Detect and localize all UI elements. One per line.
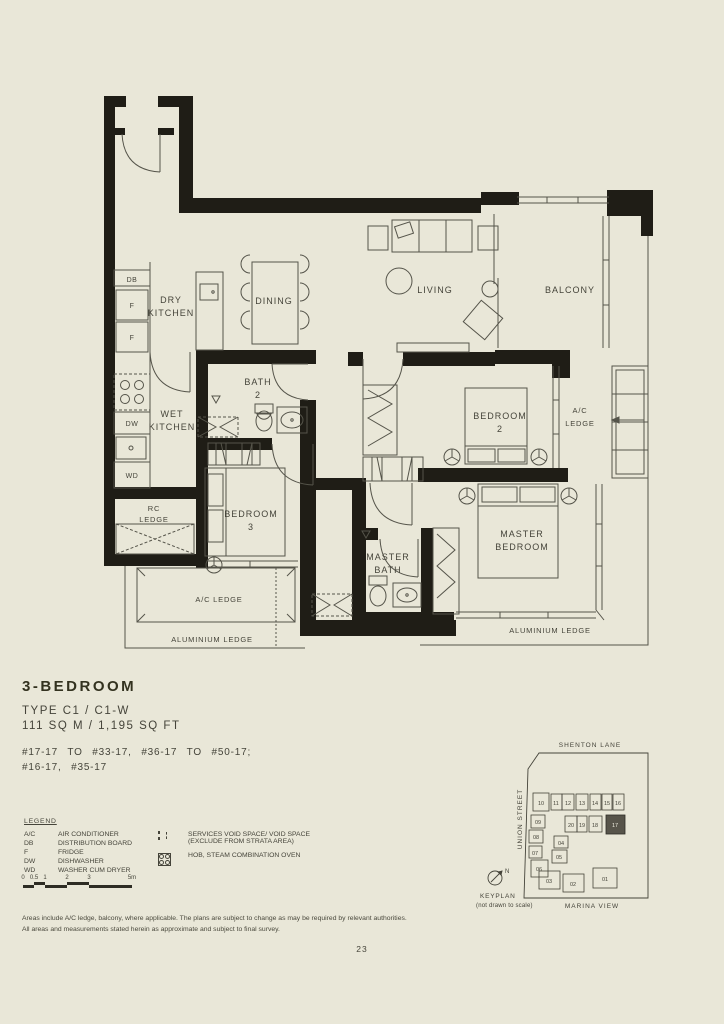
svg-text:01: 01 (602, 877, 608, 883)
legend-label: DISTRIBUTION BOARD (58, 840, 132, 847)
stool (482, 281, 498, 297)
svg-text:14: 14 (592, 801, 598, 807)
sink-master (393, 583, 421, 607)
label-wd: WD (126, 473, 139, 480)
svg-text:08: 08 (533, 835, 539, 841)
svg-text:3: 3 (248, 522, 254, 532)
label-bath2: BATH (244, 377, 271, 387)
svg-text:18: 18 (592, 823, 598, 829)
legend-abbr: A/C (24, 831, 58, 838)
label-rc-ledge: RC (148, 504, 160, 513)
title-block: 3-BEDROOM TYPE C1 / C1-W 111 SQ M / 1,19… (22, 678, 251, 775)
legend-abbr: DB (24, 840, 58, 847)
legend-label: FRIDGE (58, 849, 84, 856)
toilet-bath2 (255, 404, 273, 431)
wet-kitchen-door (150, 352, 190, 392)
scale-tick: 5m (128, 875, 136, 881)
label-f1: F (130, 303, 135, 310)
legend-label: AIR CONDITIONER (58, 831, 119, 838)
page-number: 23 (0, 944, 724, 954)
floor-plan-page: { "page": { "number": "23", "bg": "#e9e7… (0, 0, 724, 1024)
floor-trap-bath2 (212, 396, 220, 403)
svg-text:12: 12 (565, 801, 571, 807)
svg-text:BATH: BATH (374, 565, 401, 575)
accent-table (463, 300, 502, 339)
floorplan-drawing: DRY KITCHEN DINING LIVING BALCONY BATH 2… (0, 0, 724, 665)
unit-type: TYPE C1 / C1-W (22, 704, 251, 719)
keyplan-subtitle: (not drawn to scale) (476, 903, 533, 909)
svg-text:2: 2 (255, 390, 261, 400)
legend-abbr: F (24, 849, 58, 856)
keyplan-units: 10 11 12 13 14 15 16 09 08 07 06 20 19 1… (529, 793, 625, 892)
keyplan: SHENTON LANE UNION STREET MARINA VIEW 10… (462, 727, 672, 924)
label-alum-ledge-left: ALUMINIUM LEDGE (171, 635, 253, 644)
hob-oven-icon (158, 853, 178, 866)
legend-heading: LEGEND (24, 818, 310, 825)
svg-text:16: 16 (615, 801, 621, 807)
legend-abbreviations: A/CAIR CONDITIONER DBDISTRIBUTION BOARD … (24, 831, 132, 876)
label-master-bedroom: MASTER (500, 529, 544, 539)
disclaimer: Areas include A/C ledge, balcony, where … (22, 914, 642, 936)
toilet-master (369, 576, 387, 606)
entry-door (122, 134, 160, 172)
label-ac-ledge-right: A/C (573, 406, 588, 415)
svg-text:05: 05 (556, 855, 562, 861)
unit-numbers-line2: #16-17, #35-17 (22, 760, 251, 775)
page-title: 3-BEDROOM (22, 678, 251, 695)
svg-text:17: 17 (612, 823, 618, 829)
legend-abbr: DW (24, 858, 58, 865)
street-shenton-lane: SHENTON LANE (559, 742, 621, 749)
hob-icon (114, 374, 150, 410)
legend-symbol-label: HOB, STEAM COMBINATION OVEN (188, 852, 300, 859)
sofa (392, 220, 472, 252)
keyplan-boundary (524, 753, 648, 898)
disclaimer-line1: Areas include A/C ledge, balcony, where … (22, 914, 642, 925)
svg-text:KITCHEN: KITCHEN (149, 422, 196, 432)
svg-text:20: 20 (568, 823, 574, 829)
label-alum-ledge-right: ALUMINIUM LEDGE (509, 626, 591, 635)
label-master-bath: MASTER (366, 552, 410, 562)
rc-ledge-hatch (116, 524, 194, 554)
legend-symbol-label: (EXCLUDE FROM STRATA AREA) (188, 838, 310, 845)
label-balcony: BALCONY (545, 285, 595, 295)
scale-bar: 0 0.5 1 2 3 5m (20, 872, 160, 892)
label-dining: DINING (255, 296, 293, 306)
street-marina-view: MARINA VIEW (565, 903, 619, 910)
svg-text:10: 10 (538, 801, 544, 807)
svg-text:19: 19 (579, 823, 585, 829)
unit-area: 111 SQ M / 1,195 SQ FT (22, 719, 251, 734)
wardrobe-hall (363, 457, 423, 481)
svg-text:2: 2 (497, 424, 503, 434)
unit-numbers-line1: #17-17 TO #33-17, #36-17 TO #50-17; (22, 745, 251, 760)
tv-console (397, 343, 469, 352)
label-dry-kitchen: DRY (160, 295, 182, 305)
wardrobe-master (433, 528, 459, 614)
compass-icon (488, 871, 502, 885)
label-wet-kitchen: WET (161, 409, 184, 419)
scale-tick: 2 (65, 875, 69, 881)
master-bedroom-door (370, 483, 412, 525)
street-union-street: UNION STREET (517, 789, 524, 849)
legend-label: DISHWASHER (58, 858, 104, 865)
svg-text:KITCHEN: KITCHEN (148, 308, 195, 318)
scale-tick: 0.5 (30, 875, 39, 881)
coffee-table (386, 268, 412, 294)
label-bedroom3: BEDROOM (224, 509, 278, 519)
services-void-icon (158, 832, 178, 839)
keyplan-title: KEYPLAN (480, 893, 516, 900)
oven-box (116, 437, 146, 459)
svg-text:03: 03 (546, 879, 552, 885)
lamp-symbols-master (459, 488, 577, 504)
svg-text:LEDGE: LEDGE (139, 515, 168, 524)
legend-symbol-label: SERVICES VOID SPACE/ VOID SPACE (188, 831, 310, 838)
label-f2: F (130, 335, 135, 342)
side-table-left (368, 226, 388, 250)
svg-text:02: 02 (570, 882, 576, 888)
services-void-2 (312, 594, 352, 616)
svg-text:11: 11 (553, 801, 559, 807)
compass-label: N (505, 869, 510, 875)
bath2-door (272, 364, 308, 400)
scale-tick: 1 (43, 875, 47, 881)
lamp-symbol-bed3 (206, 557, 222, 573)
disclaimer-line2: All areas and measurements stated herein… (22, 925, 642, 936)
label-dw: DW (126, 421, 139, 428)
label-db: DB (127, 277, 138, 284)
svg-text:07: 07 (532, 851, 538, 857)
legend: LEGEND A/CAIR CONDITIONER DBDISTRIBUTION… (24, 818, 310, 876)
label-ac-ledge-bottom: A/C LEDGE (195, 595, 242, 604)
kitchen-island (196, 272, 223, 350)
svg-text:09: 09 (535, 820, 541, 826)
side-table-right (478, 226, 498, 250)
svg-text:04: 04 (558, 841, 564, 847)
svg-text:15: 15 (604, 801, 610, 807)
label-bedroom2: BEDROOM (473, 411, 527, 421)
svg-text:LEDGE: LEDGE (565, 419, 594, 428)
label-living: LIVING (417, 285, 453, 295)
svg-text:BEDROOM: BEDROOM (495, 542, 549, 552)
svg-text:13: 13 (579, 801, 585, 807)
scale-tick: 0 (21, 875, 25, 881)
legend-symbols: SERVICES VOID SPACE/ VOID SPACE (EXCLUDE… (158, 831, 310, 876)
scale-tick: 3 (87, 875, 91, 881)
